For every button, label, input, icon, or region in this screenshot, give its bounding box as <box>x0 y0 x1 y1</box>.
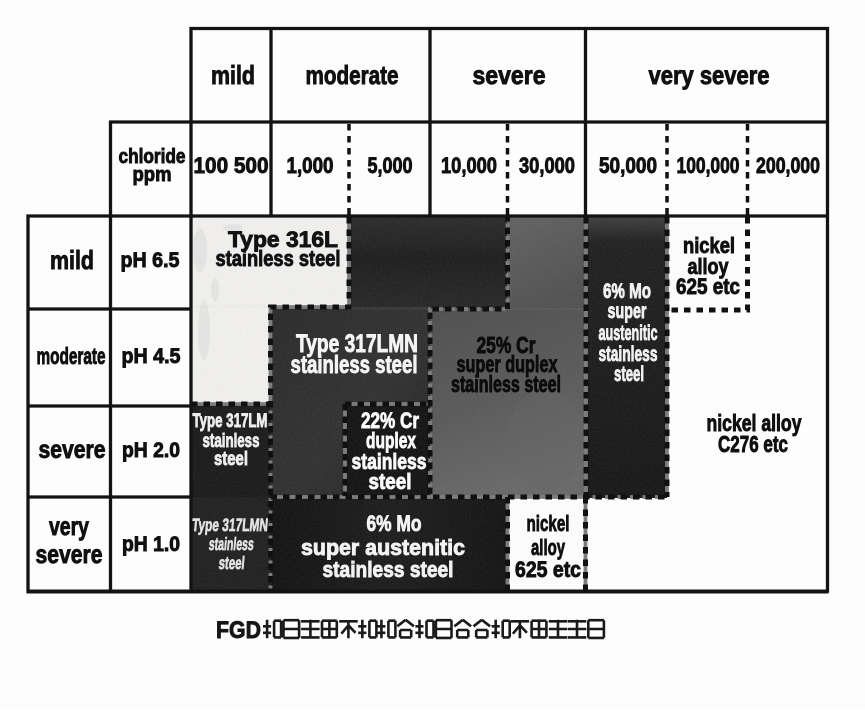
svg-text:FGD: FGD <box>216 617 261 644</box>
svg-text:pH 2.0: pH 2.0 <box>122 439 180 462</box>
svg-text:steel: steel <box>214 449 248 470</box>
svg-text:30,000: 30,000 <box>519 153 575 178</box>
svg-text:6% Mo: 6% Mo <box>367 511 422 536</box>
svg-text:severe: severe <box>36 539 103 569</box>
svg-text:nickel: nickel <box>527 511 570 536</box>
svg-text:Type 317LMN: Type 317LMN <box>191 515 269 535</box>
svg-text:stainless steel: stainless steel <box>451 371 561 397</box>
svg-text:pH 4.5: pH 4.5 <box>122 345 181 368</box>
svg-text:steel: steel <box>218 553 246 573</box>
svg-text:pH 1.0: pH 1.0 <box>122 533 180 556</box>
svg-text:pH 6.5: pH 6.5 <box>121 249 180 272</box>
svg-text:1,000: 1,000 <box>287 153 334 178</box>
svg-text:mild: mild <box>211 60 255 90</box>
svg-text:Type 317LM: Type 317LM <box>193 411 268 432</box>
svg-text:severe: severe <box>473 60 546 90</box>
svg-text:200,000: 200,000 <box>756 153 820 178</box>
svg-text:moderate: moderate <box>306 60 399 90</box>
svg-text:100,000: 100,000 <box>677 153 740 178</box>
svg-text:C276 etc: C276 etc <box>718 431 788 457</box>
svg-text:stainless steel: stainless steel <box>323 557 454 582</box>
svg-text:mild: mild <box>50 245 94 275</box>
svg-text:100 500: 100 500 <box>194 153 269 178</box>
svg-text:very severe: very severe <box>649 60 770 90</box>
svg-text:super: super <box>608 300 647 323</box>
svg-text:stainless steel: stainless steel <box>216 246 341 271</box>
svg-text:625 etc: 625 etc <box>676 274 740 299</box>
svg-text:austenitic: austenitic <box>599 322 658 345</box>
svg-text:severe: severe <box>39 436 106 464</box>
svg-text:50,000: 50,000 <box>599 153 657 178</box>
svg-text:very: very <box>49 511 89 541</box>
svg-text:10,000: 10,000 <box>441 153 497 178</box>
svg-text:moderate: moderate <box>37 343 106 369</box>
svg-text:ppm: ppm <box>133 164 172 186</box>
svg-text:625 etc: 625 etc <box>515 557 581 582</box>
svg-text:stainless steel: stainless steel <box>291 351 418 379</box>
svg-text:steel: steel <box>369 469 412 494</box>
svg-text:5,000: 5,000 <box>368 153 413 178</box>
svg-text:steel: steel <box>614 363 644 386</box>
svg-text:stainless: stainless <box>208 534 255 554</box>
